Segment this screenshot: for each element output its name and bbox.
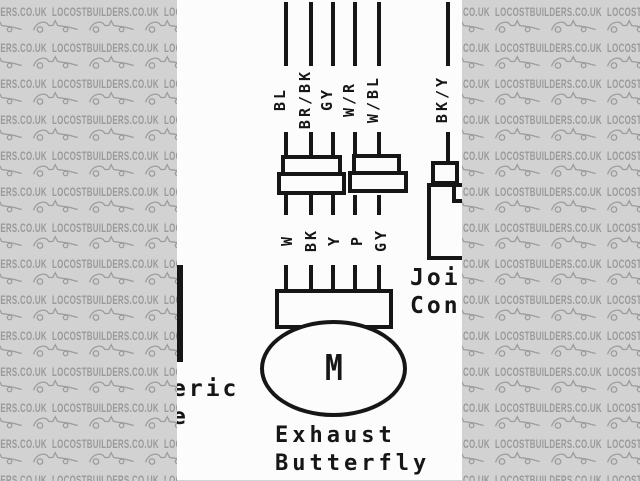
watermark-text-row: LOCOSTBUILDERS.CO.UKLOCOSTBUILDERS.CO.UK… (0, 109, 177, 123)
wire-y (331, 265, 335, 290)
watermark-text-row: LOCOSTBUILDERS.CO.UKLOCOSTBUILDERS.CO.UK… (462, 1, 640, 15)
car-logo-icon (462, 161, 486, 178)
car-logo-icon (32, 125, 80, 142)
watermark-text: LOCOSTBUILDERS.CO.UK (607, 145, 640, 164)
watermark-text: LOCOSTBUILDERS.CO.UK (495, 325, 607, 344)
car-logo-icon (550, 125, 598, 142)
watermark-text-row: LOCOSTBUILDERS.CO.UKLOCOSTBUILDERS.CO.UK… (462, 325, 640, 339)
watermark-text: LOCOSTBUILDERS.CO.UK (495, 433, 607, 452)
car-logo-icon (144, 377, 177, 394)
car-logo-icon (0, 305, 24, 322)
car-logo-icon (32, 305, 80, 322)
watermark-tile-row: LOCOSTBUILDERS.CO.UKLOCOSTBUILDERS.CO.UK… (0, 253, 177, 289)
watermark-tile-row: LOCOSTBUILDERS.CO.UKLOCOSTBUILDERS.CO.UK… (0, 145, 177, 181)
watermark-text: LOCOSTBUILDERS.CO.UK (0, 433, 52, 452)
car-logo-icon (462, 449, 486, 466)
car-logo-icon (144, 269, 177, 286)
car-logo-icon (462, 341, 486, 358)
wire-bk (309, 265, 313, 290)
watermark-tile-row: LOCOSTBUILDERS.CO.UKLOCOSTBUILDERS.CO.UK… (0, 1, 177, 37)
car-logo-icon (32, 449, 80, 466)
watermark-text-row: LOCOSTBUILDERS.CO.UKLOCOSTBUILDERS.CO.UK… (0, 145, 177, 159)
clipped-left-label-line2: e (177, 404, 189, 430)
car-logo-icon (606, 89, 640, 106)
car-logo-icon (144, 17, 177, 34)
watermark-text: LOCOSTBUILDERS.CO.UK (0, 325, 52, 344)
watermark-text-row: LOCOSTBUILDERS.CO.UKLOCOSTBUILDERS.CO.UK… (0, 217, 177, 231)
car-logo-icon (88, 341, 136, 358)
car-logo-icon (88, 161, 136, 178)
car-logo-icon (494, 305, 542, 322)
watermark-text: LOCOSTBUILDERS.CO.UK (0, 37, 52, 56)
watermark-text-row: LOCOSTBUILDERS.CO.UKLOCOSTBUILDERS.CO.UK… (462, 253, 640, 267)
car-logo-icon (0, 17, 24, 34)
watermark-tile-row: LOCOSTBUILDERS.CO.UKLOCOSTBUILDERS.CO.UK… (462, 289, 640, 325)
watermark-text: LOCOSTBUILDERS.CO.UK (52, 253, 164, 272)
wire-br-bk (309, 2, 313, 66)
watermark-text: LOCOSTBUILDERS.CO.UK (495, 181, 607, 200)
car-logo-icon (32, 17, 80, 34)
watermark-tile-row: LOCOSTBUILDERS.CO.UKLOCOSTBUILDERS.CO.UK… (0, 433, 177, 469)
watermark-text: LOCOSTBUILDERS.CO.UK (164, 289, 177, 308)
car-logo-icon (494, 125, 542, 142)
watermark-text-row: LOCOSTBUILDERS.CO.UKLOCOSTBUILDERS.CO.UK… (0, 397, 177, 411)
watermark-text: LOCOSTBUILDERS.CO.UK (0, 289, 52, 308)
car-logo-icon (88, 53, 136, 70)
watermark-text: LOCOSTBUILDERS.CO.UK (164, 109, 177, 128)
watermark-text: LOCOSTBUILDERS.CO.UK (164, 1, 177, 20)
car-logo-icon (88, 197, 136, 214)
car-logo-icon (144, 341, 177, 358)
watermark-text: LOCOSTBUILDERS.CO.UK (495, 145, 607, 164)
car-logo-icon (32, 269, 80, 286)
watermark-text: LOCOSTBUILDERS.CO.UK (52, 109, 164, 128)
watermark-tile-row: LOCOSTBUILDERS.CO.UKLOCOSTBUILDERS.CO.UK… (462, 253, 640, 289)
watermark-tile-row: LOCOSTBUILDERS.CO.UKLOCOSTBUILDERS.CO.UK… (0, 397, 177, 433)
watermark-text: LOCOSTBUILDERS.CO.UK (0, 397, 52, 416)
watermark-text: LOCOSTBUILDERS.CO.UK (52, 73, 164, 92)
car-logo-icon (32, 89, 80, 106)
car-logo-icon (606, 17, 640, 34)
wire-label-bl: BL (271, 87, 289, 111)
watermark-tile-row: LOCOSTBUILDERS.CO.UKLOCOSTBUILDERS.CO.UK… (0, 325, 177, 361)
car-logo-icon (88, 269, 136, 286)
watermark-tile-row: LOCOSTBUILDERS.CO.UKLOCOSTBUILDERS.CO.UK… (462, 73, 640, 109)
wire-p (353, 195, 357, 215)
car-logo-icon (550, 341, 598, 358)
watermark-text-row: LOCOSTBUILDERS.CO.UKLOCOSTBUILDERS.CO.UK… (462, 181, 640, 195)
watermark-text: LOCOSTBUILDERS.CO.UK (0, 361, 52, 380)
car-logo-icon (88, 89, 136, 106)
watermark-tile-row: LOCOSTBUILDERS.CO.UKLOCOSTBUILDERS.CO.UK… (0, 37, 177, 73)
watermark-text: LOCOSTBUILDERS.CO.UK (164, 253, 177, 272)
wire-label-gy: GY (318, 87, 336, 111)
watermark-text-row: LOCOSTBUILDERS.CO.UKLOCOSTBUILDERS.CO.UK… (0, 469, 177, 481)
joint-connector-body (427, 183, 462, 260)
car-logo-icon (606, 197, 640, 214)
car-logo-icon (494, 341, 542, 358)
watermark-text-row: LOCOSTBUILDERS.CO.UKLOCOSTBUILDERS.CO.UK… (0, 37, 177, 51)
watermark-text-row: LOCOSTBUILDERS.CO.UKLOCOSTBUILDERS.CO.UK… (0, 1, 177, 15)
car-logo-icon (462, 413, 486, 430)
car-logo-icon (0, 377, 24, 394)
watermark-tile-row: LOCOSTBUILDERS.CO.UKLOCOSTBUILDERS.CO.UK… (462, 1, 640, 37)
watermark-text-row: LOCOSTBUILDERS.CO.UKLOCOSTBUILDERS.CO.UK… (462, 109, 640, 123)
car-logo-icon (462, 17, 486, 34)
watermark-text-row: LOCOSTBUILDERS.CO.UKLOCOSTBUILDERS.CO.UK… (0, 361, 177, 375)
watermark-tile-row: LOCOSTBUILDERS.CO.UKLOCOSTBUILDERS.CO.UK… (462, 469, 640, 481)
connector-right-bottom (348, 171, 408, 193)
car-logo-icon (0, 197, 24, 214)
car-logo-icon (462, 89, 486, 106)
watermark-text: LOCOSTBUILDERS.CO.UK (495, 73, 607, 92)
watermark-tile-row: LOCOSTBUILDERS.CO.UKLOCOSTBUILDERS.CO.UK… (0, 469, 177, 481)
car-logo-icon (88, 449, 136, 466)
wire-gy (331, 2, 335, 66)
car-logo-icon (462, 53, 486, 70)
car-logo-icon (494, 377, 542, 394)
car-logo-icon (606, 413, 640, 430)
car-logo-icon (494, 269, 542, 286)
watermark-text: LOCOSTBUILDERS.CO.UK (607, 397, 640, 416)
car-logo-icon (144, 125, 177, 142)
watermark-tile-row: LOCOSTBUILDERS.CO.UKLOCOSTBUILDERS.CO.UK… (462, 181, 640, 217)
watermark-text: LOCOSTBUILDERS.CO.UK (495, 109, 607, 128)
watermark-text-row: LOCOSTBUILDERS.CO.UKLOCOSTBUILDERS.CO.UK… (0, 433, 177, 447)
car-logo-icon (144, 89, 177, 106)
watermark-text: LOCOSTBUILDERS.CO.UK (52, 181, 164, 200)
car-logo-icon (32, 53, 80, 70)
wire-gy (377, 195, 381, 215)
watermark-tile-row: LOCOSTBUILDERS.CO.UKLOCOSTBUILDERS.CO.UK… (462, 145, 640, 181)
wiring-diagram-panel: BL BR/BK GY W/R W/BL BK/Y W BK Y P GY M … (177, 0, 462, 480)
car-logo-icon (0, 125, 24, 142)
car-logo-icon (606, 125, 640, 142)
car-logo-icon (88, 233, 136, 250)
watermark-text: LOCOSTBUILDERS.CO.UK (52, 397, 164, 416)
watermark-text: LOCOSTBUILDERS.CO.UK (0, 109, 52, 128)
clipped-left-wire (177, 265, 183, 362)
car-logo-icon (550, 377, 598, 394)
car-logo-icon (606, 269, 640, 286)
watermark-text: LOCOSTBUILDERS.CO.UK (0, 145, 52, 164)
car-logo-icon (550, 197, 598, 214)
joint-connector-label-line1: Joi (410, 265, 461, 291)
watermark-text: LOCOSTBUILDERS.CO.UK (164, 181, 177, 200)
watermark-text-row: LOCOSTBUILDERS.CO.UKLOCOSTBUILDERS.CO.UK… (462, 73, 640, 87)
car-logo-icon (144, 53, 177, 70)
watermark-text-row: LOCOSTBUILDERS.CO.UKLOCOSTBUILDERS.CO.UK… (0, 325, 177, 339)
car-logo-icon (494, 17, 542, 34)
car-logo-icon (462, 377, 486, 394)
car-logo-icon (550, 233, 598, 250)
watermark-text-row: LOCOSTBUILDERS.CO.UKLOCOSTBUILDERS.CO.UK… (462, 37, 640, 51)
car-logo-icon (494, 233, 542, 250)
watermark-text: LOCOSTBUILDERS.CO.UK (607, 253, 640, 272)
car-logo-icon (550, 413, 598, 430)
wire-bl (284, 2, 288, 66)
car-logo-icon (494, 449, 542, 466)
car-logo-icon (32, 377, 80, 394)
car-logo-icon (606, 53, 640, 70)
car-logo-icon (462, 305, 486, 322)
watermark-tile-row: LOCOSTBUILDERS.CO.UKLOCOSTBUILDERS.CO.UK… (462, 37, 640, 73)
wire-label-bk-y: BK/Y (433, 75, 451, 123)
car-logo-icon (606, 161, 640, 178)
connector-left-bottom (277, 172, 346, 195)
watermark-tile-row: LOCOSTBUILDERS.CO.UKLOCOSTBUILDERS.CO.UK… (462, 325, 640, 361)
car-logo-icon (0, 233, 24, 250)
car-logo-icon (606, 341, 640, 358)
watermark-text: LOCOSTBUILDERS.CO.UK (607, 289, 640, 308)
watermark-text: LOCOSTBUILDERS.CO.UK (164, 325, 177, 344)
watermark-tile-row: LOCOSTBUILDERS.CO.UKLOCOSTBUILDERS.CO.UK… (0, 289, 177, 325)
car-logo-icon (494, 89, 542, 106)
watermark-tile-row: LOCOSTBUILDERS.CO.UKLOCOSTBUILDERS.CO.UK… (0, 109, 177, 145)
car-logo-icon (550, 449, 598, 466)
wire-w-bl (377, 2, 381, 66)
watermark-text: LOCOSTBUILDERS.CO.UK (164, 433, 177, 452)
watermark-text: LOCOSTBUILDERS.CO.UK (495, 253, 607, 272)
watermark-text: LOCOSTBUILDERS.CO.UK (164, 37, 177, 56)
car-logo-icon (32, 161, 80, 178)
wire-w (284, 195, 288, 215)
watermark-text-row: LOCOSTBUILDERS.CO.UKLOCOSTBUILDERS.CO.UK… (0, 181, 177, 195)
watermark-text: LOCOSTBUILDERS.CO.UK (607, 433, 640, 452)
car-logo-icon (550, 53, 598, 70)
car-logo-icon (0, 413, 24, 430)
car-logo-icon (88, 377, 136, 394)
watermark-tile-row: LOCOSTBUILDERS.CO.UKLOCOSTBUILDERS.CO.UK… (462, 433, 640, 469)
car-logo-icon (462, 233, 486, 250)
car-logo-icon (32, 341, 80, 358)
car-logo-icon (88, 17, 136, 34)
car-logo-icon (144, 233, 177, 250)
watermark-tile-row: LOCOSTBUILDERS.CO.UKLOCOSTBUILDERS.CO.UK… (0, 73, 177, 109)
clipped-left-label-line1: eric (177, 376, 239, 402)
car-logo-icon (494, 53, 542, 70)
car-logo-icon (0, 53, 24, 70)
watermark-text: LOCOSTBUILDERS.CO.UK (164, 145, 177, 164)
car-logo-icon (144, 449, 177, 466)
watermark-text-row: LOCOSTBUILDERS.CO.UKLOCOSTBUILDERS.CO.UK… (0, 253, 177, 267)
caption-line1: Exhaust (275, 423, 396, 448)
wire-label-p: P (348, 234, 366, 246)
watermark-text-row: LOCOSTBUILDERS.CO.UKLOCOSTBUILDERS.CO.UK… (462, 469, 640, 481)
watermark-text: LOCOSTBUILDERS.CO.UK (164, 397, 177, 416)
car-logo-icon (494, 413, 542, 430)
car-logo-icon (550, 17, 598, 34)
watermark-text: LOCOSTBUILDERS.CO.UK (164, 361, 177, 380)
watermark-text: LOCOSTBUILDERS.CO.UK (164, 469, 177, 481)
car-logo-icon (32, 233, 80, 250)
watermark-text: LOCOSTBUILDERS.CO.UK (495, 397, 607, 416)
watermark-text: LOCOSTBUILDERS.CO.UK (0, 217, 52, 236)
wire-label-bk: BK (302, 228, 320, 252)
watermark-text: LOCOSTBUILDERS.CO.UK (607, 37, 640, 56)
car-logo-icon (0, 161, 24, 178)
car-logo-icon (494, 197, 542, 214)
watermark-text: LOCOSTBUILDERS.CO.UK (462, 469, 495, 481)
watermark-text: LOCOSTBUILDERS.CO.UK (607, 181, 640, 200)
wire-label-w-bl: W/BL (364, 75, 382, 123)
wire-w-r (353, 2, 357, 66)
watermark-text: LOCOSTBUILDERS.CO.UK (495, 469, 607, 481)
car-logo-icon (144, 161, 177, 178)
watermark-text: LOCOSTBUILDERS.CO.UK (495, 37, 607, 56)
watermark-band-right: LOCOSTBUILDERS.CO.UKLOCOSTBUILDERS.CO.UK… (462, 0, 640, 481)
watermark-text: LOCOSTBUILDERS.CO.UK (164, 217, 177, 236)
watermark-tile-row: LOCOSTBUILDERS.CO.UKLOCOSTBUILDERS.CO.UK… (462, 397, 640, 433)
car-logo-icon (88, 305, 136, 322)
watermark-text: LOCOSTBUILDERS.CO.UK (0, 73, 52, 92)
joint-connector-step (452, 199, 462, 203)
watermark-text: LOCOSTBUILDERS.CO.UK (52, 469, 164, 481)
car-logo-icon (88, 413, 136, 430)
car-logo-icon (144, 413, 177, 430)
watermark-text: LOCOSTBUILDERS.CO.UK (0, 253, 52, 272)
watermark-text: LOCOSTBUILDERS.CO.UK (0, 1, 52, 20)
car-logo-icon (606, 449, 640, 466)
car-logo-icon (550, 269, 598, 286)
car-logo-icon (462, 125, 486, 142)
watermark-text: LOCOSTBUILDERS.CO.UK (0, 469, 52, 481)
watermark-text: LOCOSTBUILDERS.CO.UK (52, 289, 164, 308)
watermark-text: LOCOSTBUILDERS.CO.UK (495, 361, 607, 380)
wire-p (353, 265, 357, 290)
car-logo-icon (606, 233, 640, 250)
watermark-text: LOCOSTBUILDERS.CO.UK (495, 217, 607, 236)
watermark-text: LOCOSTBUILDERS.CO.UK (52, 37, 164, 56)
watermark-text: LOCOSTBUILDERS.CO.UK (164, 73, 177, 92)
car-logo-icon (144, 305, 177, 322)
watermark-tile-row: LOCOSTBUILDERS.CO.UKLOCOSTBUILDERS.CO.UK… (462, 109, 640, 145)
watermark-text: LOCOSTBUILDERS.CO.UK (607, 469, 640, 481)
watermark-text-row: LOCOSTBUILDERS.CO.UKLOCOSTBUILDERS.CO.UK… (462, 433, 640, 447)
watermark-text: LOCOSTBUILDERS.CO.UK (52, 433, 164, 452)
wire-label-br-bk: BR/BK (296, 69, 314, 129)
watermark-text-row: LOCOSTBUILDERS.CO.UKLOCOSTBUILDERS.CO.UK… (462, 397, 640, 411)
car-logo-icon (494, 161, 542, 178)
watermark-tile-row: LOCOSTBUILDERS.CO.UKLOCOSTBUILDERS.CO.UK… (0, 181, 177, 217)
watermark-text: LOCOSTBUILDERS.CO.UK (607, 109, 640, 128)
watermark-text-row: LOCOSTBUILDERS.CO.UKLOCOSTBUILDERS.CO.UK… (0, 289, 177, 303)
watermark-text: LOCOSTBUILDERS.CO.UK (495, 289, 607, 308)
car-logo-icon (0, 449, 24, 466)
watermark-text: LOCOSTBUILDERS.CO.UK (52, 361, 164, 380)
wire-label-w: W (278, 234, 296, 246)
watermark-text: LOCOSTBUILDERS.CO.UK (607, 325, 640, 344)
watermark-text-row: LOCOSTBUILDERS.CO.UKLOCOSTBUILDERS.CO.UK… (462, 217, 640, 231)
watermark-tile-row: LOCOSTBUILDERS.CO.UKLOCOSTBUILDERS.CO.UK… (0, 361, 177, 397)
watermark-text-row: LOCOSTBUILDERS.CO.UKLOCOSTBUILDERS.CO.UK… (462, 145, 640, 159)
wire-y (331, 195, 335, 215)
car-logo-icon (606, 377, 640, 394)
watermark-text: LOCOSTBUILDERS.CO.UK (52, 1, 164, 20)
watermark-text: LOCOSTBUILDERS.CO.UK (495, 1, 607, 20)
car-logo-icon (550, 89, 598, 106)
motor-letter: M (325, 348, 343, 389)
watermark-text: LOCOSTBUILDERS.CO.UK (0, 181, 52, 200)
car-logo-icon (606, 305, 640, 322)
car-logo-icon (0, 269, 24, 286)
car-logo-icon (32, 197, 80, 214)
watermark-text-row: LOCOSTBUILDERS.CO.UKLOCOSTBUILDERS.CO.UK… (0, 73, 177, 87)
car-logo-icon (32, 413, 80, 430)
watermark-text: LOCOSTBUILDERS.CO.UK (607, 361, 640, 380)
watermark-text: LOCOSTBUILDERS.CO.UK (607, 1, 640, 20)
wire-bk (309, 195, 313, 215)
watermark-tile-row: LOCOSTBUILDERS.CO.UKLOCOSTBUILDERS.CO.UK… (462, 361, 640, 397)
car-logo-icon (550, 161, 598, 178)
watermark-tile-row: LOCOSTBUILDERS.CO.UKLOCOSTBUILDERS.CO.UK… (462, 217, 640, 253)
car-logo-icon (144, 197, 177, 214)
motor-symbol: M (260, 320, 407, 417)
watermark-text-row: LOCOSTBUILDERS.CO.UKLOCOSTBUILDERS.CO.UK… (462, 361, 640, 375)
watermark-text: LOCOSTBUILDERS.CO.UK (52, 217, 164, 236)
watermark-tile-row: LOCOSTBUILDERS.CO.UKLOCOSTBUILDERS.CO.UK… (0, 217, 177, 253)
wire-gy (377, 265, 381, 290)
joint-connector-label-line2: Con (410, 293, 461, 319)
car-logo-icon (462, 197, 486, 214)
watermark-band-left: LOCOSTBUILDERS.CO.UKLOCOSTBUILDERS.CO.UK… (0, 0, 177, 481)
car-logo-icon (462, 269, 486, 286)
watermark-text-row: LOCOSTBUILDERS.CO.UKLOCOSTBUILDERS.CO.UK… (462, 289, 640, 303)
watermark-text: LOCOSTBUILDERS.CO.UK (52, 325, 164, 344)
wire-label-y: Y (325, 234, 343, 246)
wire-w (284, 265, 288, 290)
car-logo-icon (0, 341, 24, 358)
watermark-text: LOCOSTBUILDERS.CO.UK (607, 73, 640, 92)
car-logo-icon (88, 125, 136, 142)
caption-line2: Butterfly (275, 451, 430, 476)
wire-label-gy: GY (372, 228, 390, 252)
car-logo-icon (550, 305, 598, 322)
wire-label-w-r: W/R (340, 81, 358, 117)
wire-bk-y (446, 2, 450, 66)
joint-connector-plug (431, 161, 459, 185)
watermark-text: LOCOSTBUILDERS.CO.UK (52, 145, 164, 164)
car-logo-icon (0, 89, 24, 106)
watermark-text: LOCOSTBUILDERS.CO.UK (607, 217, 640, 236)
